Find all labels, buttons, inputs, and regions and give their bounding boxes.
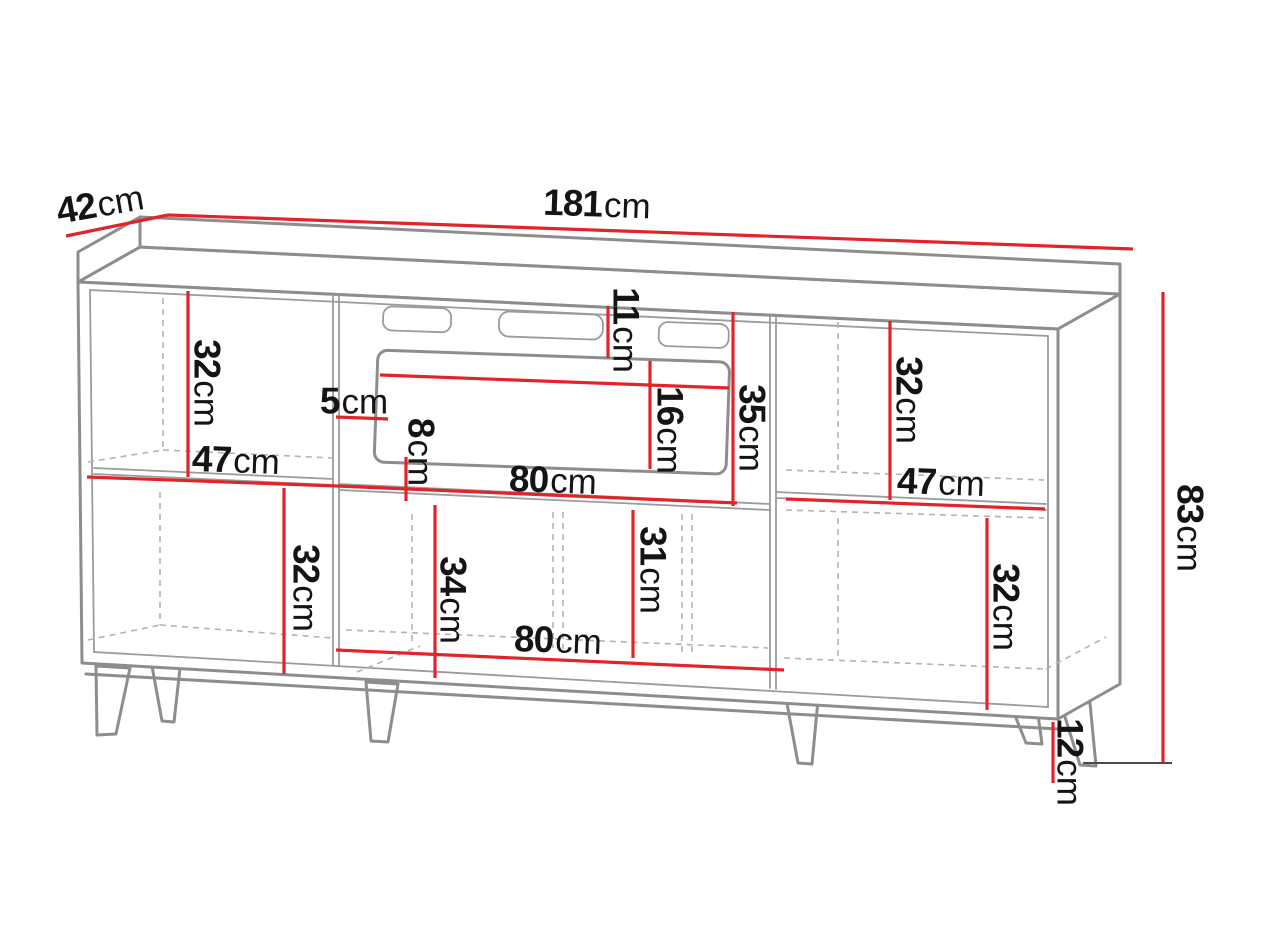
dim-unit: cm	[603, 188, 651, 225]
dim-value: 34	[435, 556, 472, 595]
dim-value: 35	[734, 384, 771, 423]
right-side-panel	[1058, 294, 1120, 719]
dim-unit: cm	[94, 180, 146, 223]
dim-unit: cm	[1052, 759, 1087, 806]
dim-unit: cm	[938, 465, 986, 502]
dim-label-bottom-gap: 8cm	[403, 418, 440, 486]
dim-unit: cm	[341, 385, 388, 420]
dim-label-firebox-height: 16cm	[652, 386, 689, 474]
dim-value: 32	[988, 563, 1025, 602]
dim-unit: cm	[652, 427, 687, 474]
dim-value: 80	[513, 620, 553, 658]
dim-label-total-height: 83cm	[1172, 484, 1209, 572]
dim-value: 181	[543, 184, 603, 223]
dim-value: 32	[189, 339, 226, 378]
dim-unit: cm	[403, 439, 438, 486]
dim-label-niche-height: 35cm	[734, 384, 771, 472]
dim-value: 16	[652, 386, 689, 425]
dim-value: 31	[635, 526, 672, 565]
dim-unit: cm	[734, 425, 769, 472]
dim-value: 42	[54, 187, 99, 230]
dim-label-right-width: 47cm	[896, 462, 985, 502]
dim-value: 8	[403, 418, 440, 438]
dim-label-total-width: 181cm	[543, 184, 652, 225]
leg-rear-left	[152, 666, 180, 722]
dim-unit: cm	[891, 397, 926, 444]
dim-unit: cm	[435, 597, 470, 644]
dim-unit: cm	[288, 585, 323, 632]
dim-unit: cm	[988, 604, 1023, 651]
dim-unit: cm	[550, 463, 598, 500]
dim-unit: cm	[555, 623, 603, 660]
dim-label-right-bottom-height: 32cm	[988, 563, 1025, 651]
dim-value: 11	[608, 287, 645, 324]
dim-unit: cm	[608, 326, 643, 373]
furniture-line-drawing	[0, 0, 1268, 951]
dim-label-middle-bottom-height: 34cm	[435, 556, 472, 644]
dim-unit: cm	[1172, 525, 1207, 572]
dim-value: 32	[891, 356, 928, 395]
dim-label-vent-offset: 11cm	[608, 287, 645, 373]
dim-label-left-bottom-height: 32cm	[288, 544, 325, 632]
dim-label-side-gap: 5cm	[320, 383, 388, 420]
dim-value: 47	[896, 462, 936, 500]
dim-label-leg-height: 12cm	[1052, 718, 1089, 806]
dim-label-left-top-height: 32cm	[189, 339, 226, 427]
dim-value: 5	[320, 383, 340, 420]
dim-value: 83	[1172, 484, 1209, 523]
dim-value: 80	[508, 460, 548, 498]
dim-label-bottom-niche-width: 80cm	[513, 620, 602, 660]
leg-front-middle-right	[786, 698, 818, 764]
dim-label-left-width: 47cm	[191, 440, 280, 480]
dim-value: 12	[1052, 718, 1089, 757]
dim-unit: cm	[233, 443, 281, 480]
dimension-diagram: 42cm 181cm 83cm 12cm 32cm 47cm 32cm 11cm…	[0, 0, 1268, 951]
dim-label-niche-width: 80cm	[508, 460, 597, 500]
dim-label-right-top-height: 32cm	[891, 356, 928, 444]
dim-value: 32	[288, 544, 325, 583]
dim-unit: cm	[189, 380, 224, 427]
dim-value: 47	[191, 440, 231, 478]
dim-label-middle-right-height: 31cm	[635, 526, 672, 614]
dim-unit: cm	[635, 567, 670, 614]
